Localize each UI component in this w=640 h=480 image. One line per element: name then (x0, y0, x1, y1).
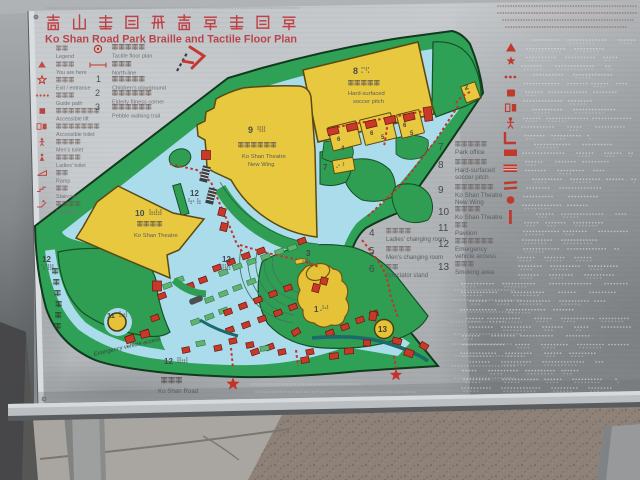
svg-text:Guide path: Guide path (56, 101, 82, 107)
svg-text:Ko Shan Theatre: Ko Shan Theatre (242, 154, 286, 160)
svg-text:1: 1 (96, 74, 101, 84)
svg-text:2: 2 (95, 88, 100, 98)
svg-text:Ko Shan Theatre: Ko Shan Theatre (455, 192, 503, 199)
svg-text:6: 6 (369, 264, 375, 275)
svg-text:Hard-surfaced: Hard-surfaced (455, 167, 495, 174)
svg-text:Spectator stand: Spectator stand (386, 273, 428, 279)
svg-text:12: 12 (164, 357, 173, 366)
svg-text:Ko Shan Road Park Braille and: Ko Shan Road Park Braille and Tactile Fl… (45, 34, 297, 46)
svg-text:12: 12 (42, 255, 51, 264)
svg-text:Ko Shan Theatre: Ko Shan Theatre (455, 214, 503, 221)
svg-text:12: 12 (438, 239, 450, 250)
svg-text:Accessible lift: Accessible lift (56, 117, 89, 123)
svg-text:Men's changing room: Men's changing room (386, 255, 443, 261)
svg-text:3: 3 (306, 249, 311, 258)
svg-text:Ladies' toilet: Ladies' toilet (56, 163, 86, 169)
svg-text:Legend: Legend (56, 54, 74, 60)
svg-text:8: 8 (438, 160, 444, 171)
svg-text:9: 9 (438, 185, 444, 196)
svg-text:Ramp: Ramp (56, 179, 70, 185)
svg-text:Ko Shan Road: Ko Shan Road (158, 388, 199, 395)
svg-text:Tactile floor plan: Tactile floor plan (112, 54, 152, 60)
svg-text:Staircase: Staircase (56, 194, 78, 200)
svg-text:Emergency: Emergency (455, 246, 488, 253)
svg-text:10: 10 (135, 208, 145, 218)
svg-text:Park office: Park office (455, 149, 485, 156)
svg-text:11: 11 (107, 311, 115, 320)
svg-text:9: 9 (248, 125, 253, 135)
svg-text:12: 12 (222, 255, 231, 264)
svg-text:soccer pitch: soccer pitch (455, 174, 489, 181)
svg-text:Exit / entrance: Exit / entrance (56, 86, 90, 92)
svg-text:Pavilion: Pavilion (455, 230, 478, 237)
svg-text:3: 3 (95, 102, 100, 112)
svg-text:7: 7 (323, 163, 328, 172)
svg-text:New Wing: New Wing (248, 162, 274, 168)
svg-text:1: 1 (314, 305, 319, 314)
svg-text:4: 4 (369, 228, 375, 239)
svg-text:Smoking area: Smoking area (455, 269, 494, 276)
svg-text:11: 11 (438, 223, 449, 234)
svg-text:13: 13 (438, 262, 450, 273)
svg-text:5: 5 (369, 246, 375, 257)
svg-text:vehicle access: vehicle access (455, 253, 496, 260)
svg-text:Escalator: Escalator (56, 210, 79, 216)
svg-text:Hard-surfaced: Hard-surfaced (348, 91, 385, 97)
svg-text:12: 12 (190, 189, 199, 198)
svg-text:13: 13 (378, 325, 387, 334)
svg-text:You are here: You are here (56, 70, 87, 76)
svg-text:Pebble walking trail: Pebble walking trail (112, 114, 160, 120)
svg-text:North-line: North-line (112, 71, 136, 77)
svg-text:Ko Shan Theatre: Ko Shan Theatre (134, 233, 178, 239)
svg-text:New Wing: New Wing (455, 199, 484, 206)
svg-text:Men's toilet: Men's toilet (56, 148, 84, 154)
svg-text:Accessible toilet: Accessible toilet (56, 132, 95, 138)
svg-text:7: 7 (438, 142, 444, 153)
svg-text:10: 10 (438, 207, 450, 218)
svg-text:8: 8 (353, 66, 358, 76)
svg-text:soccer pitch: soccer pitch (353, 99, 384, 105)
